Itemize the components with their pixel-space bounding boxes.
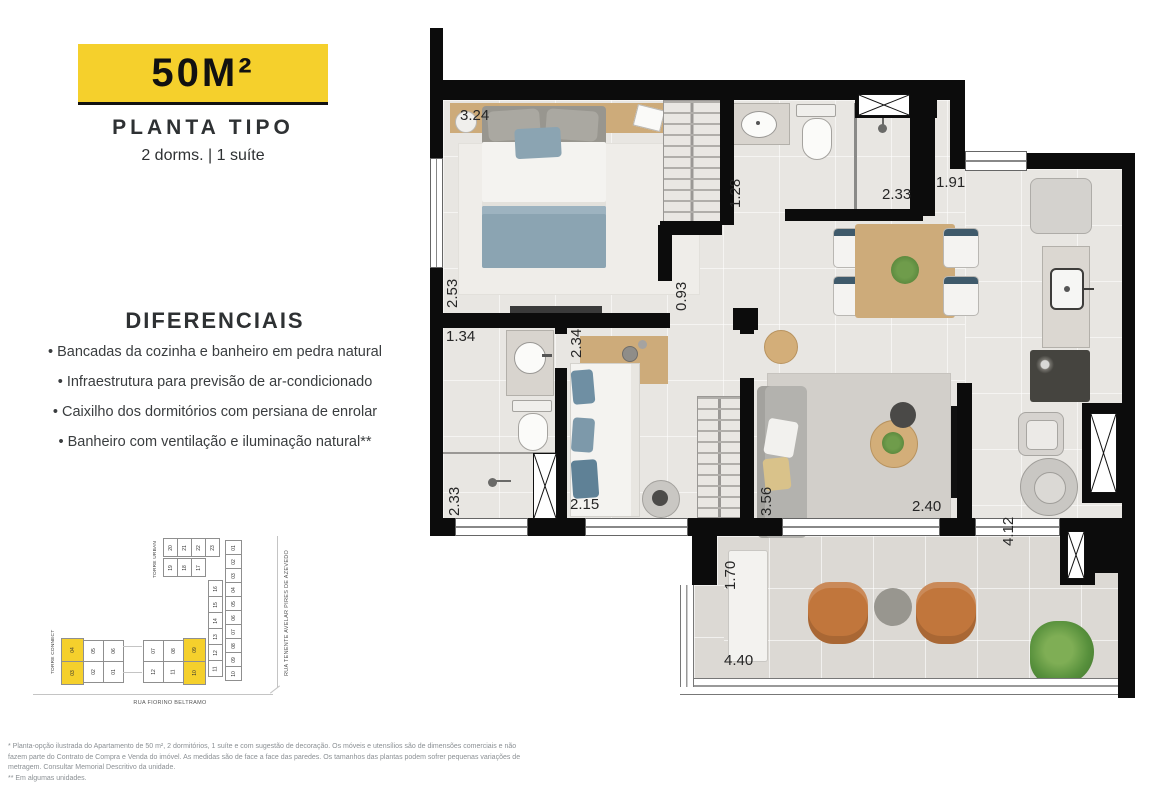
dim-suite-depth: 2.53 <box>444 279 461 308</box>
unit-cell: 02 <box>83 661 104 683</box>
bath2-toilet-tank <box>512 400 552 412</box>
unit-cell: 10 <box>225 666 242 681</box>
dim-bath1-shower: 2.33 <box>882 186 911 203</box>
unit-cell-highlight: 03 <box>61 661 84 685</box>
dim-suite-width: 3.24 <box>460 107 489 124</box>
dorm2-desk-decor <box>622 346 638 362</box>
unit-cell: 02 <box>225 554 242 569</box>
dim-living-width: 2.40 <box>912 498 941 515</box>
balcony-armchair <box>808 582 868 644</box>
dim-hall-width: 0.93 <box>673 282 690 311</box>
wall <box>910 106 935 216</box>
bath2-shower-arm <box>495 480 511 482</box>
dim-kitchen-depth: 4.12 <box>1000 517 1017 546</box>
wall <box>957 383 972 536</box>
wall <box>1122 153 1135 573</box>
page-title: PLANTA TIPO <box>58 116 348 140</box>
unit-cell: 03 <box>225 568 242 583</box>
wall <box>692 518 717 585</box>
dorm2-pillow <box>571 459 600 499</box>
window-suite <box>430 158 443 268</box>
unit-cell: 09 <box>225 652 242 667</box>
unit-cell: 01 <box>225 540 242 555</box>
kitchen-faucet-arm <box>1082 288 1094 290</box>
torre-urban-label: TORRE URBAN <box>153 541 159 578</box>
bath1-toilet-bowl <box>802 118 832 160</box>
unit-cell: 04 <box>225 582 242 597</box>
dim-bath2-width: 1.34 <box>446 328 475 345</box>
washing-machine-drum <box>1034 472 1066 504</box>
unit-cell: 05 <box>83 640 104 662</box>
suite-bed-blanket <box>482 206 606 268</box>
window-bath2 <box>455 518 528 536</box>
stove <box>1030 350 1090 402</box>
unit-cell: 07 <box>225 624 242 639</box>
bath1-toilet-tank <box>796 104 836 117</box>
wall <box>722 209 731 221</box>
dorm2-pillow <box>571 417 595 452</box>
dim-bath1-width: 1.28 <box>727 179 744 208</box>
unit-cell: 23 <box>205 538 220 557</box>
unit-cell: 05 <box>225 596 242 611</box>
unit-cell: 06 <box>225 610 242 625</box>
bath2-faucet <box>542 354 552 357</box>
unit-cell: 08 <box>163 640 184 662</box>
unit-cell: 18 <box>177 558 192 577</box>
wall <box>785 209 923 221</box>
unit-cell: 06 <box>103 640 124 662</box>
diferenciais-title: DIFERENCIAIS <box>0 308 430 334</box>
connect-bridge <box>123 646 142 647</box>
unit-cell-highlight: 09 <box>183 638 206 662</box>
living-side-table <box>764 330 798 364</box>
kitchen-faucet <box>1064 286 1070 292</box>
dorm2-desk-decor <box>638 340 647 349</box>
street-label-right: RUA TENENTE AVELAR PIRES DE AZEVEDO <box>284 550 290 676</box>
unit-cell: 16 <box>208 580 223 597</box>
dim-balcony-width: 4.40 <box>724 652 753 669</box>
site-key-plan: RUA TENENTE AVELAR PIRES DE AZEVEDO RUA … <box>25 536 305 716</box>
bath1-shower-glass <box>854 103 857 209</box>
wall <box>430 80 443 536</box>
street-corner <box>270 685 280 693</box>
wall <box>740 328 754 334</box>
dim-balcony-depth: 1.70 <box>722 561 739 590</box>
street-line-right <box>277 536 278 688</box>
laundry-sink-basin <box>1026 420 1058 450</box>
balcony-round-table <box>874 588 912 626</box>
dim-dorm2-length: 2.15 <box>570 496 599 513</box>
shaft-box <box>858 94 910 116</box>
living-sofa-pillow-white <box>763 418 799 459</box>
dining-table-plant <box>891 256 919 284</box>
disclaimer: * Planta-opção ilustrada do Apartamento … <box>8 742 528 784</box>
unit-cell: 07 <box>143 640 164 662</box>
disclaimer-line2: ** Em algumas unidades. <box>8 774 528 785</box>
unit-cell-highlight: 10 <box>183 661 206 685</box>
unit-cell: 14 <box>208 612 223 629</box>
unit-cell: 01 <box>103 661 124 683</box>
connect-bridge <box>123 672 142 673</box>
dining-chair <box>943 276 979 316</box>
bath1-faucet <box>756 121 760 125</box>
wall <box>658 225 672 281</box>
diferenciais-item: Infraestrutura para previsão de ar-condi… <box>0 374 435 390</box>
wall <box>740 378 754 536</box>
balcony-railing-bottom <box>680 678 1118 695</box>
balcony-sliding-door <box>782 518 940 536</box>
shaft-box <box>1090 413 1117 493</box>
page-subtitle: 2 dorms. | 1 suíte <box>58 147 348 165</box>
unit-cell: 08 <box>225 638 242 653</box>
living-dark-table <box>890 402 916 428</box>
street-line-bottom <box>33 694 273 695</box>
torre-connect-label: TORRE CONNECT <box>51 630 57 674</box>
unit-cell: 13 <box>208 628 223 645</box>
wall <box>430 313 670 328</box>
unit-cell: 15 <box>208 596 223 613</box>
area-badge: 50M² <box>78 44 328 105</box>
unit-cell: 21 <box>177 538 192 557</box>
dim-kitchen-width: 1.91 <box>936 174 965 191</box>
balcony-floor-left <box>694 585 724 683</box>
unit-cell: 22 <box>191 538 206 557</box>
wall <box>555 328 567 334</box>
floor-plan: 3.24 2.53 1.28 2.33 1.91 0.93 1.34 2.34 … <box>430 28 1135 730</box>
balcony-sliding-door <box>975 518 1060 536</box>
diferenciais-item: Banheiro com ventilação e iluminação nat… <box>0 434 435 450</box>
wall <box>733 308 758 330</box>
fridge <box>1030 178 1092 234</box>
dorm2-closet-rack <box>697 396 742 518</box>
bath2-toilet-bowl <box>518 413 548 451</box>
unit-cell: 17 <box>191 558 206 577</box>
unit-cell: 11 <box>163 661 184 683</box>
street-label-bottom: RUA FIORINO BELTRAMO <box>110 700 230 706</box>
window-kitchen <box>965 151 1027 171</box>
suite-blue-pillow <box>514 127 562 159</box>
bath2-sink <box>514 342 546 374</box>
wall <box>1118 573 1135 698</box>
balcony-railing-left <box>680 585 694 687</box>
dining-chair <box>943 228 979 268</box>
unit-cell: 11 <box>208 660 223 677</box>
living-coffee-table-plant <box>882 432 904 454</box>
wall <box>1093 518 1135 573</box>
shaft-box <box>533 453 557 519</box>
diferenciais-item: Caixilho dos dormitórios com persiana de… <box>0 404 435 420</box>
dim-living-depth: 3.56 <box>758 487 775 516</box>
unit-cell-highlight: 04 <box>61 638 84 662</box>
dim-dorm2-width: 2.34 <box>568 329 585 358</box>
suite-closet-rack <box>663 100 721 225</box>
disclaimer-line1: * Planta-opção ilustrada do Apartamento … <box>8 742 528 774</box>
unit-cell: 19 <box>163 558 178 577</box>
shaft-box <box>1067 531 1085 579</box>
unit-cell: 12 <box>208 644 223 661</box>
unit-cell: 20 <box>163 538 178 557</box>
window-dorm2 <box>585 518 688 536</box>
dorm2-pouf-center <box>652 490 668 506</box>
diferenciais-item: Bancadas da cozinha e banheiro em pedra … <box>0 344 435 360</box>
balcony-armchair <box>916 582 976 644</box>
unit-cell: 12 <box>143 661 164 683</box>
area-badge-text: 50M² <box>151 51 254 96</box>
dim-bath2-shower: 2.33 <box>446 487 463 516</box>
dorm2-pillow <box>571 369 596 405</box>
